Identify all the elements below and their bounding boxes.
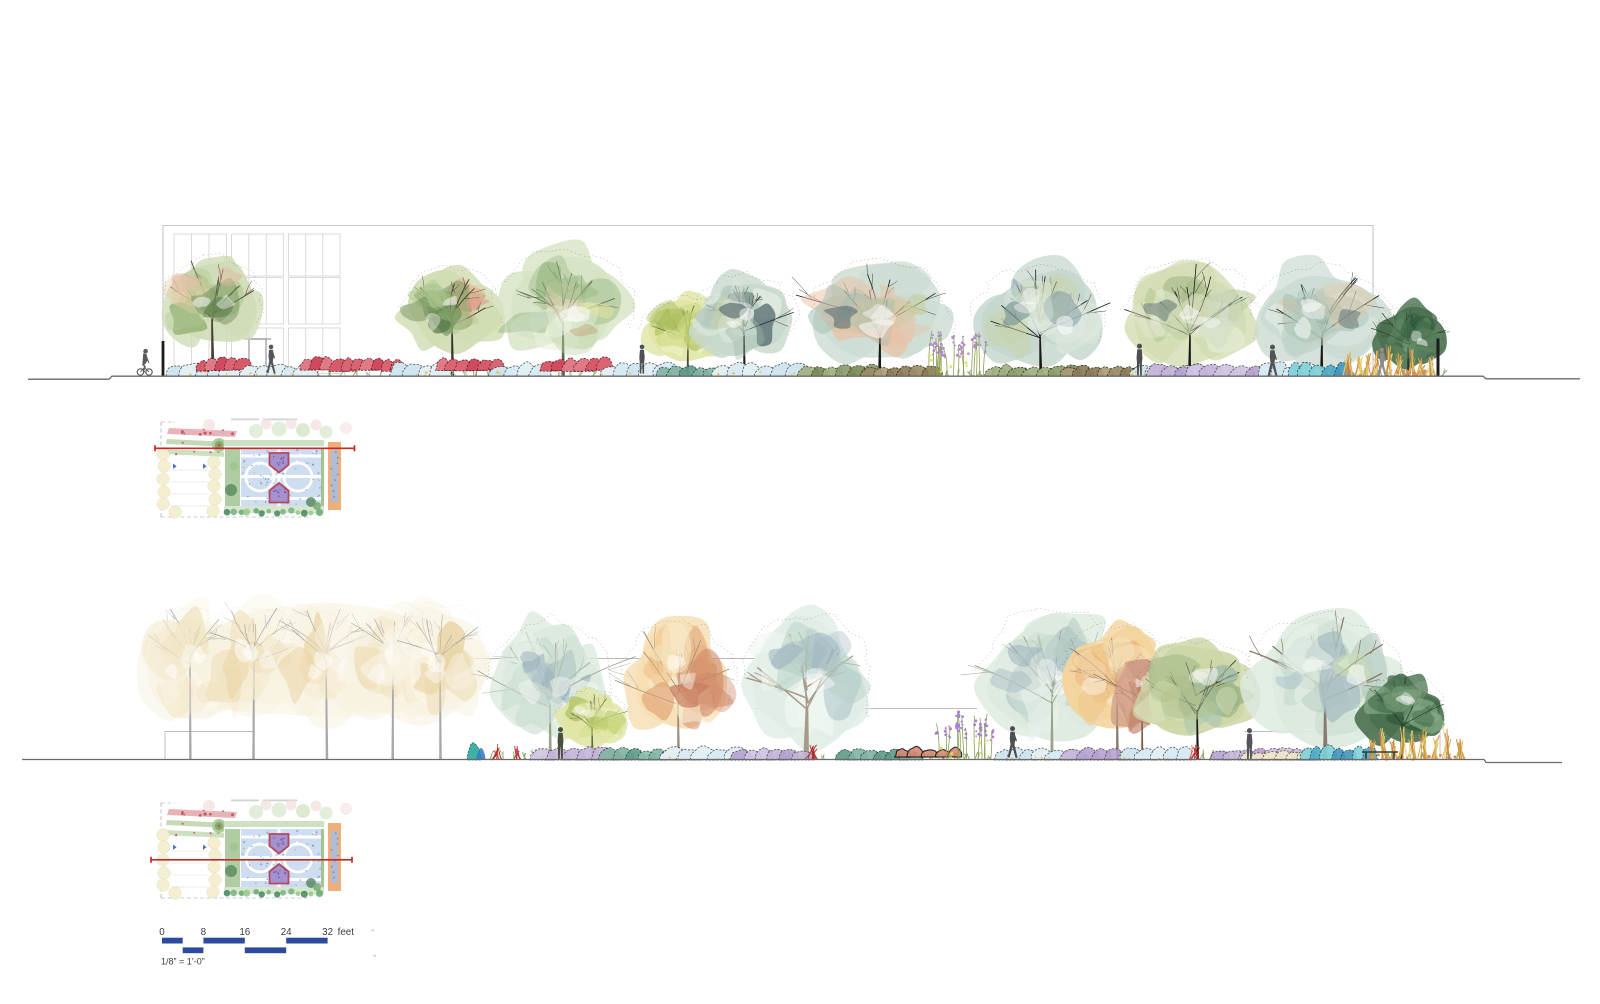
svg-text:8: 8 xyxy=(201,927,207,938)
svg-text:16: 16 xyxy=(239,927,250,938)
svg-text:feet: feet xyxy=(338,927,355,938)
svg-text:0: 0 xyxy=(159,927,165,938)
svg-text:32: 32 xyxy=(322,927,333,938)
svg-text:24: 24 xyxy=(281,927,292,938)
svg-text:1/8” = 1’-0”: 1/8” = 1’-0” xyxy=(161,957,205,967)
